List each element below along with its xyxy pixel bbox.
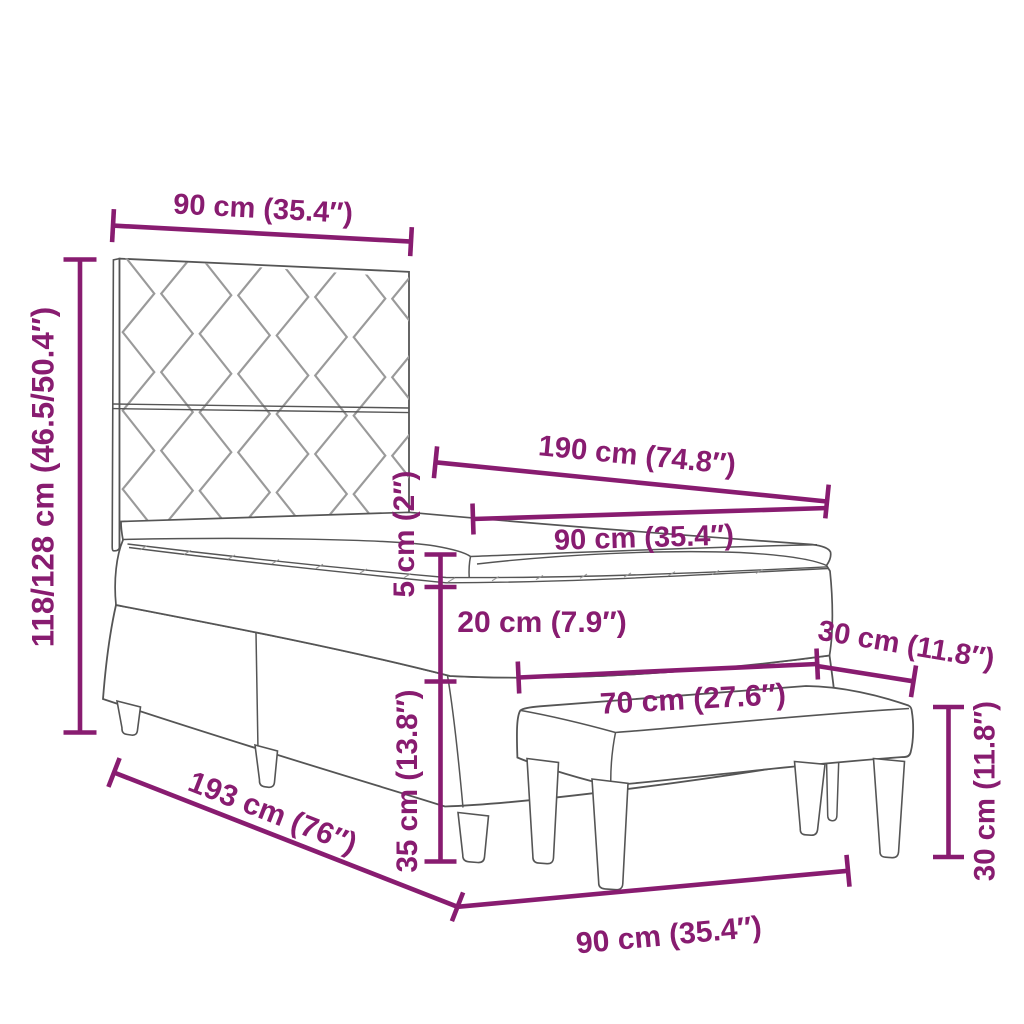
svg-text:30 cm (11.8″): 30 cm (11.8″) bbox=[969, 701, 1002, 881]
svg-text:35 cm (13.8″): 35 cm (13.8″) bbox=[391, 689, 424, 872]
svg-text:118/128 cm (46.5/50.4″): 118/128 cm (46.5/50.4″) bbox=[25, 307, 60, 647]
svg-text:20 cm (7.9″): 20 cm (7.9″) bbox=[457, 606, 626, 639]
svg-text:90 cm (35.4″): 90 cm (35.4″) bbox=[554, 519, 735, 557]
svg-text:5 cm (2″): 5 cm (2″) bbox=[388, 471, 421, 598]
